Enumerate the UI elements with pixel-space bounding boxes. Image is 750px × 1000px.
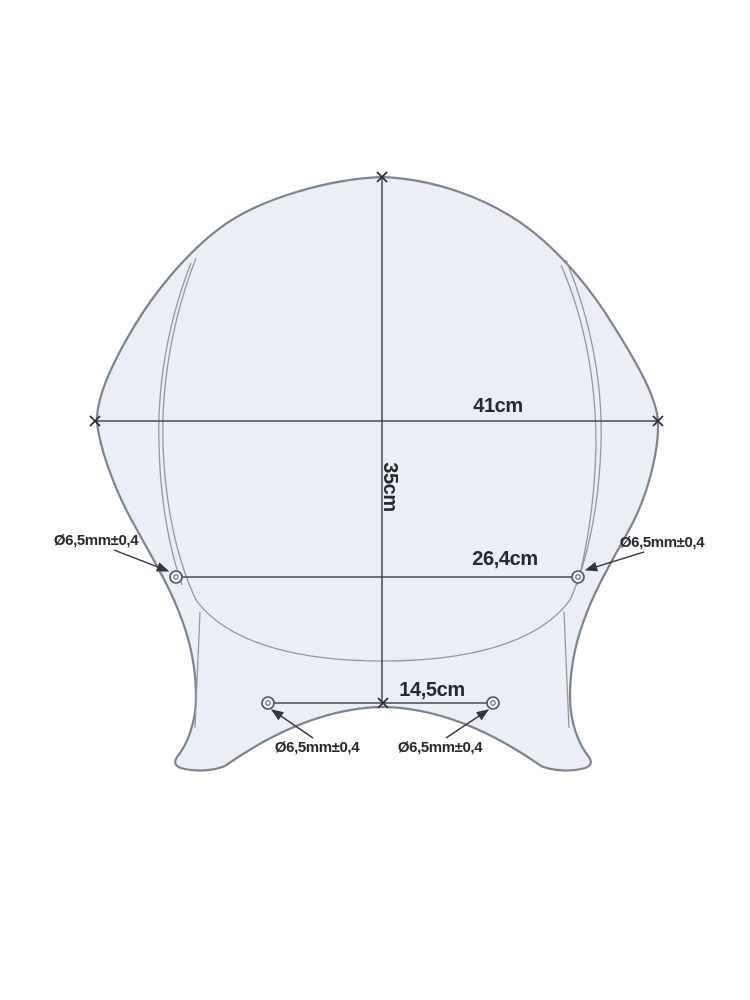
hole-lower-right bbox=[487, 697, 499, 709]
label-hole-upper-left: Ø6,5mm±0,4 bbox=[54, 532, 139, 549]
hole-lower-left bbox=[262, 697, 274, 709]
windscreen-outline bbox=[97, 177, 658, 770]
label-hole-upper-right: Ø6,5mm±0,4 bbox=[620, 534, 705, 551]
windscreen-diagram: 41cm 35cm 26,4cm 14,5cm Ø6,5mm±0,4 Ø6,5m… bbox=[0, 0, 750, 1000]
drawing-canvas: 41cm 35cm 26,4cm 14,5cm Ø6,5mm±0,4 Ø6,5m… bbox=[0, 0, 750, 1000]
label-spacing-26-4cm: 26,4cm bbox=[472, 548, 537, 570]
label-spacing-14-5cm: 14,5cm bbox=[399, 679, 464, 701]
hole-upper-left bbox=[170, 571, 182, 583]
label-width-41cm: 41cm bbox=[473, 395, 523, 417]
label-hole-lower-right: Ø6,5mm±0,4 bbox=[398, 739, 483, 756]
label-height-35cm: 35cm bbox=[379, 462, 401, 512]
label-hole-lower-left: Ø6,5mm±0,4 bbox=[275, 739, 360, 756]
hole-upper-right bbox=[572, 571, 584, 583]
